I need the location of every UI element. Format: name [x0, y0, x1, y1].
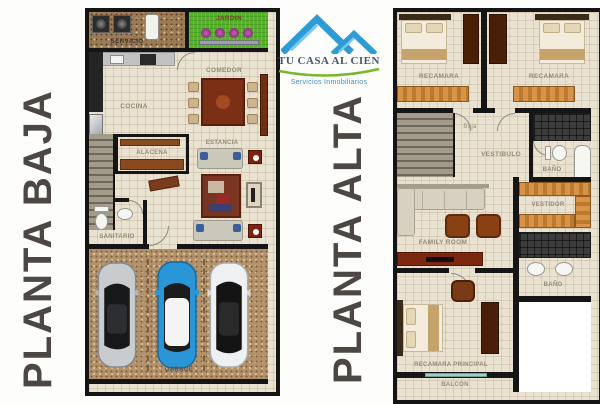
planta-alta-plan: RECAMARA RECAMARA Baja VESTIBULO BAÑO — [393, 8, 600, 404]
cushion-seam — [466, 191, 467, 209]
bed-icon — [403, 304, 443, 352]
parking-line — [147, 259, 149, 371]
flower-icon — [229, 28, 239, 38]
room-alacena: ALACENA — [115, 134, 189, 174]
stairs-icon — [397, 113, 455, 177]
label-vestidor: VESTIDOR — [521, 202, 575, 208]
toilet-bowl-icon — [552, 145, 567, 161]
bed-icon — [539, 20, 585, 64]
bed-runner-icon — [402, 49, 447, 60]
pillow-icon — [406, 331, 416, 348]
planta-baja-plan: SERVICIO JARDIN COCINA COMEDOR — [85, 8, 280, 396]
pillow-icon — [405, 23, 422, 33]
chair-icon — [188, 98, 199, 108]
coffee-table-icon — [209, 204, 231, 212]
label-servicio: SERVICIO — [97, 39, 157, 46]
label-recamara-2: RECAMARA — [507, 74, 591, 81]
buffet-cabinet-icon — [260, 74, 268, 136]
label-comedor: COMEDOR — [194, 68, 254, 75]
logo-roofs-icon — [281, 12, 377, 54]
tv-icon — [251, 188, 255, 202]
tv-console-icon — [397, 252, 483, 266]
sink-icon — [527, 262, 545, 276]
wall — [115, 198, 129, 202]
kitchen-cabinets-icon — [89, 52, 103, 112]
bed-icon — [401, 20, 447, 64]
toilet-icon — [545, 146, 551, 160]
wall — [143, 200, 147, 244]
dresser-icon — [397, 86, 469, 102]
stove-icon — [140, 54, 156, 65]
pillow-icon — [233, 152, 241, 160]
label-garage: GARAGE — [151, 367, 207, 373]
bed-runner-icon — [428, 305, 439, 351]
planta-baja-title: PLANTA BAJA — [16, 82, 84, 396]
logo-title: TU CASA AL CIEN — [272, 55, 386, 67]
desk-icon — [148, 175, 179, 191]
toilet-icon — [94, 206, 109, 212]
chair-icon — [188, 82, 199, 92]
label-cocina: COCINA — [109, 104, 159, 111]
pantry-shelf-icon — [120, 139, 180, 146]
car-blue-icon — [155, 259, 199, 371]
cushion-seam — [444, 191, 445, 209]
dresser-icon — [513, 86, 575, 102]
closet-icon — [481, 302, 499, 354]
toilet-bowl-icon — [95, 213, 108, 230]
sink-icon — [555, 262, 573, 276]
chair-icon — [247, 114, 258, 124]
wall — [397, 268, 449, 273]
washer-icon — [92, 15, 110, 33]
bed-runner-icon — [540, 49, 585, 60]
bath-counter-icon — [519, 232, 591, 258]
sofa-icon — [197, 148, 243, 169]
washer-drum-icon — [96, 19, 106, 29]
pillow-icon — [233, 224, 241, 232]
flower-icon — [243, 28, 253, 38]
armchair-icon — [445, 214, 470, 238]
flower-icon — [201, 28, 211, 38]
car-white-icon — [207, 261, 251, 369]
pillow-icon — [543, 23, 560, 33]
label-bano-2: BAÑO — [531, 282, 575, 288]
floorplan-image: PLANTA BAJA SERVICIO JARDIN COCINA — [0, 0, 600, 400]
pillow-icon — [426, 23, 443, 33]
sink-icon — [110, 55, 124, 64]
label-jardin: JARDIN — [199, 16, 259, 23]
armchair-icon — [476, 214, 501, 238]
sofa-icon — [193, 220, 243, 241]
pantry-shelf-icon — [120, 159, 184, 170]
open-void-area — [519, 302, 591, 392]
chair-icon — [188, 114, 199, 124]
planta-baja-title-text: PLANTA BAJA — [16, 82, 61, 396]
centerpiece-icon — [216, 95, 230, 109]
kitchen-counter-icon — [101, 52, 175, 66]
label-sanitario: SANITARIO — [91, 234, 143, 240]
tv-niche-icon — [246, 182, 262, 208]
rug-icon — [201, 174, 241, 218]
closet-icon — [489, 14, 507, 64]
sink-icon — [117, 208, 133, 220]
flower-icon — [215, 28, 225, 38]
wall — [475, 268, 513, 273]
label-vestibulo: VESTIBULO — [469, 152, 533, 159]
balcony-door-icon — [425, 373, 487, 377]
label-baja: Baja — [457, 124, 483, 130]
chair-icon — [247, 98, 258, 108]
room-garage: GARAGE — [89, 249, 268, 379]
wardrobe-icon — [519, 182, 591, 196]
room-jardin: JARDIN — [189, 12, 268, 48]
wall — [89, 379, 268, 384]
door-arc — [497, 113, 515, 131]
dining-table-icon — [201, 78, 245, 126]
planta-alta-title-text: PLANTA ALTA — [326, 82, 371, 396]
label-recamara-principal: RECAMARA PRINCIPAL — [399, 362, 503, 368]
closet-icon — [463, 14, 479, 64]
chair-icon — [247, 82, 258, 92]
cushion-icon — [208, 181, 224, 193]
label-estancia: ESTANCIA — [197, 140, 247, 146]
dryer-icon — [113, 15, 131, 33]
lamp-icon — [253, 155, 259, 161]
car-silver-icon — [95, 261, 139, 369]
room-servicio: SERVICIO — [89, 12, 185, 48]
label-family-room: FAMILY ROOM — [405, 240, 481, 247]
pillow-icon — [200, 152, 208, 160]
label-recamara-1: RECAMARA — [397, 74, 481, 81]
pillow-icon — [196, 224, 204, 232]
side-table-icon — [248, 150, 262, 164]
wall — [473, 108, 495, 113]
door-arc — [177, 52, 195, 70]
lamp-icon — [253, 229, 259, 235]
label-alacena: ALACENA — [122, 150, 182, 156]
tv-icon — [426, 257, 454, 262]
parking-line — [203, 259, 205, 371]
wall — [481, 12, 487, 108]
side-table-icon — [248, 224, 262, 238]
wardrobe-icon — [575, 196, 591, 228]
label-balcon: BALCON — [417, 382, 493, 388]
sectional-arm-icon — [397, 188, 415, 236]
logo-swoosh-icon — [275, 67, 383, 77]
pillow-icon — [564, 23, 581, 33]
water-heater-icon — [145, 14, 159, 40]
door-arc — [149, 226, 169, 246]
wardrobe-icon — [519, 214, 575, 228]
planta-alta-title: PLANTA ALTA — [326, 82, 388, 396]
cushion-seam — [422, 191, 423, 209]
ottoman-icon — [451, 280, 475, 302]
logo: TU CASA AL CIEN Servicios Inmobiliarios — [272, 12, 386, 86]
dryer-drum-icon — [117, 19, 127, 29]
shower-icon — [533, 113, 591, 141]
pillow-icon — [406, 308, 416, 325]
label-bano-1: BAÑO — [535, 167, 569, 173]
planter-icon — [199, 40, 259, 45]
